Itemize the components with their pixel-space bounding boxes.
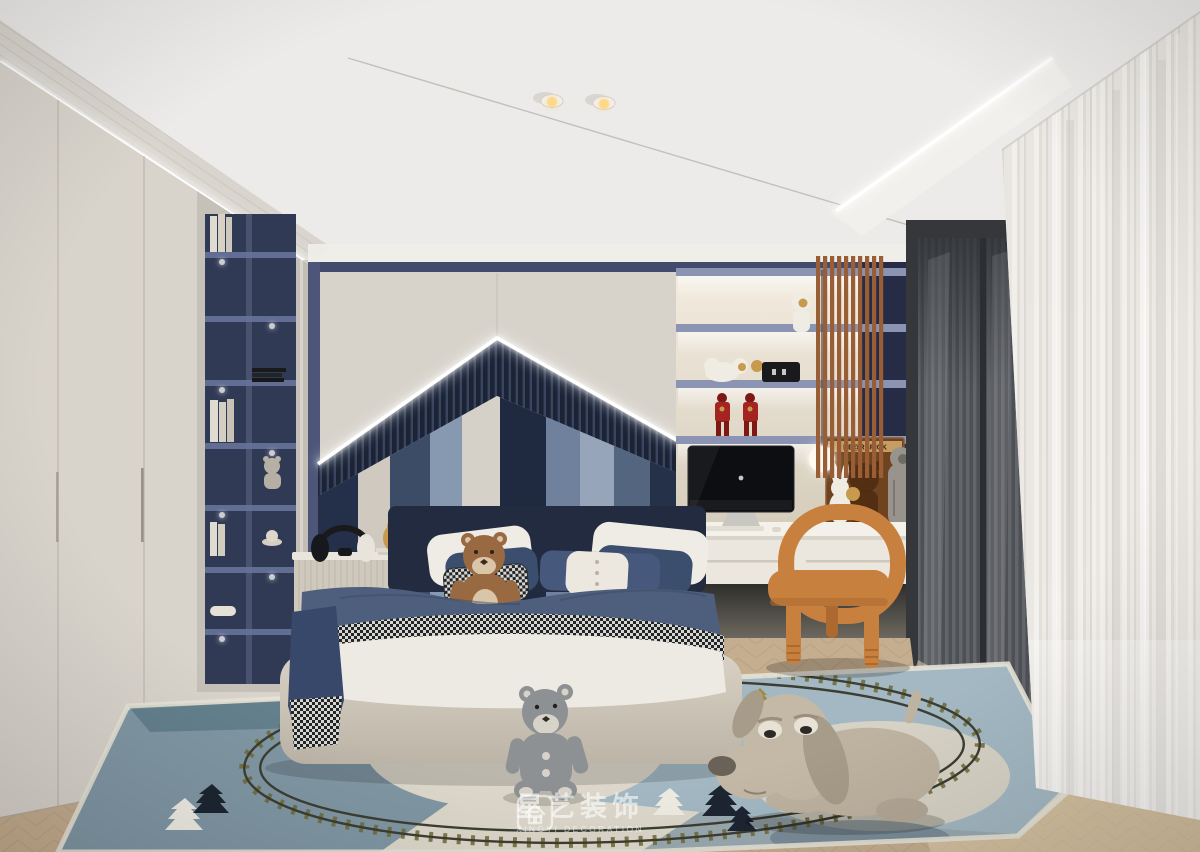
room-scene: BE@RBRICK bbox=[0, 0, 1200, 852]
bedroom-render: BE@RBRICK bbox=[0, 0, 1200, 852]
vignette bbox=[0, 0, 1200, 852]
